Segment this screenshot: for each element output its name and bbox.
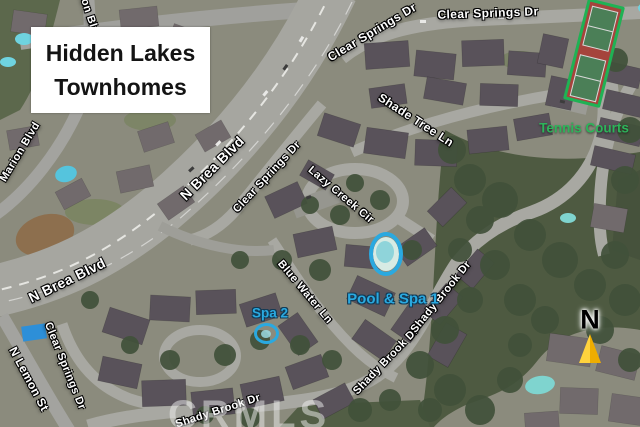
title-line-1: Hidden Lakes	[46, 36, 196, 71]
north-label: N	[580, 305, 600, 336]
tennis-courts-label: Tennis Courts	[539, 121, 629, 136]
pool-spa-1-label: Pool & Spa 1	[347, 291, 439, 308]
aerial-map: Marion BlvdMarion BlvdN Brea BlvdClear S…	[0, 0, 640, 427]
watermark: CRMLS	[168, 393, 330, 427]
north-arrow-icon	[579, 334, 590, 363]
north-arrow-icon-shade	[590, 334, 601, 363]
spa-2-circle	[254, 323, 279, 344]
title-box: Hidden Lakes Townhomes	[31, 27, 210, 113]
spa-2-label: Spa 2	[252, 306, 288, 321]
title-line-2: Townhomes	[54, 70, 186, 105]
pool-spa-1-circle	[369, 232, 403, 276]
